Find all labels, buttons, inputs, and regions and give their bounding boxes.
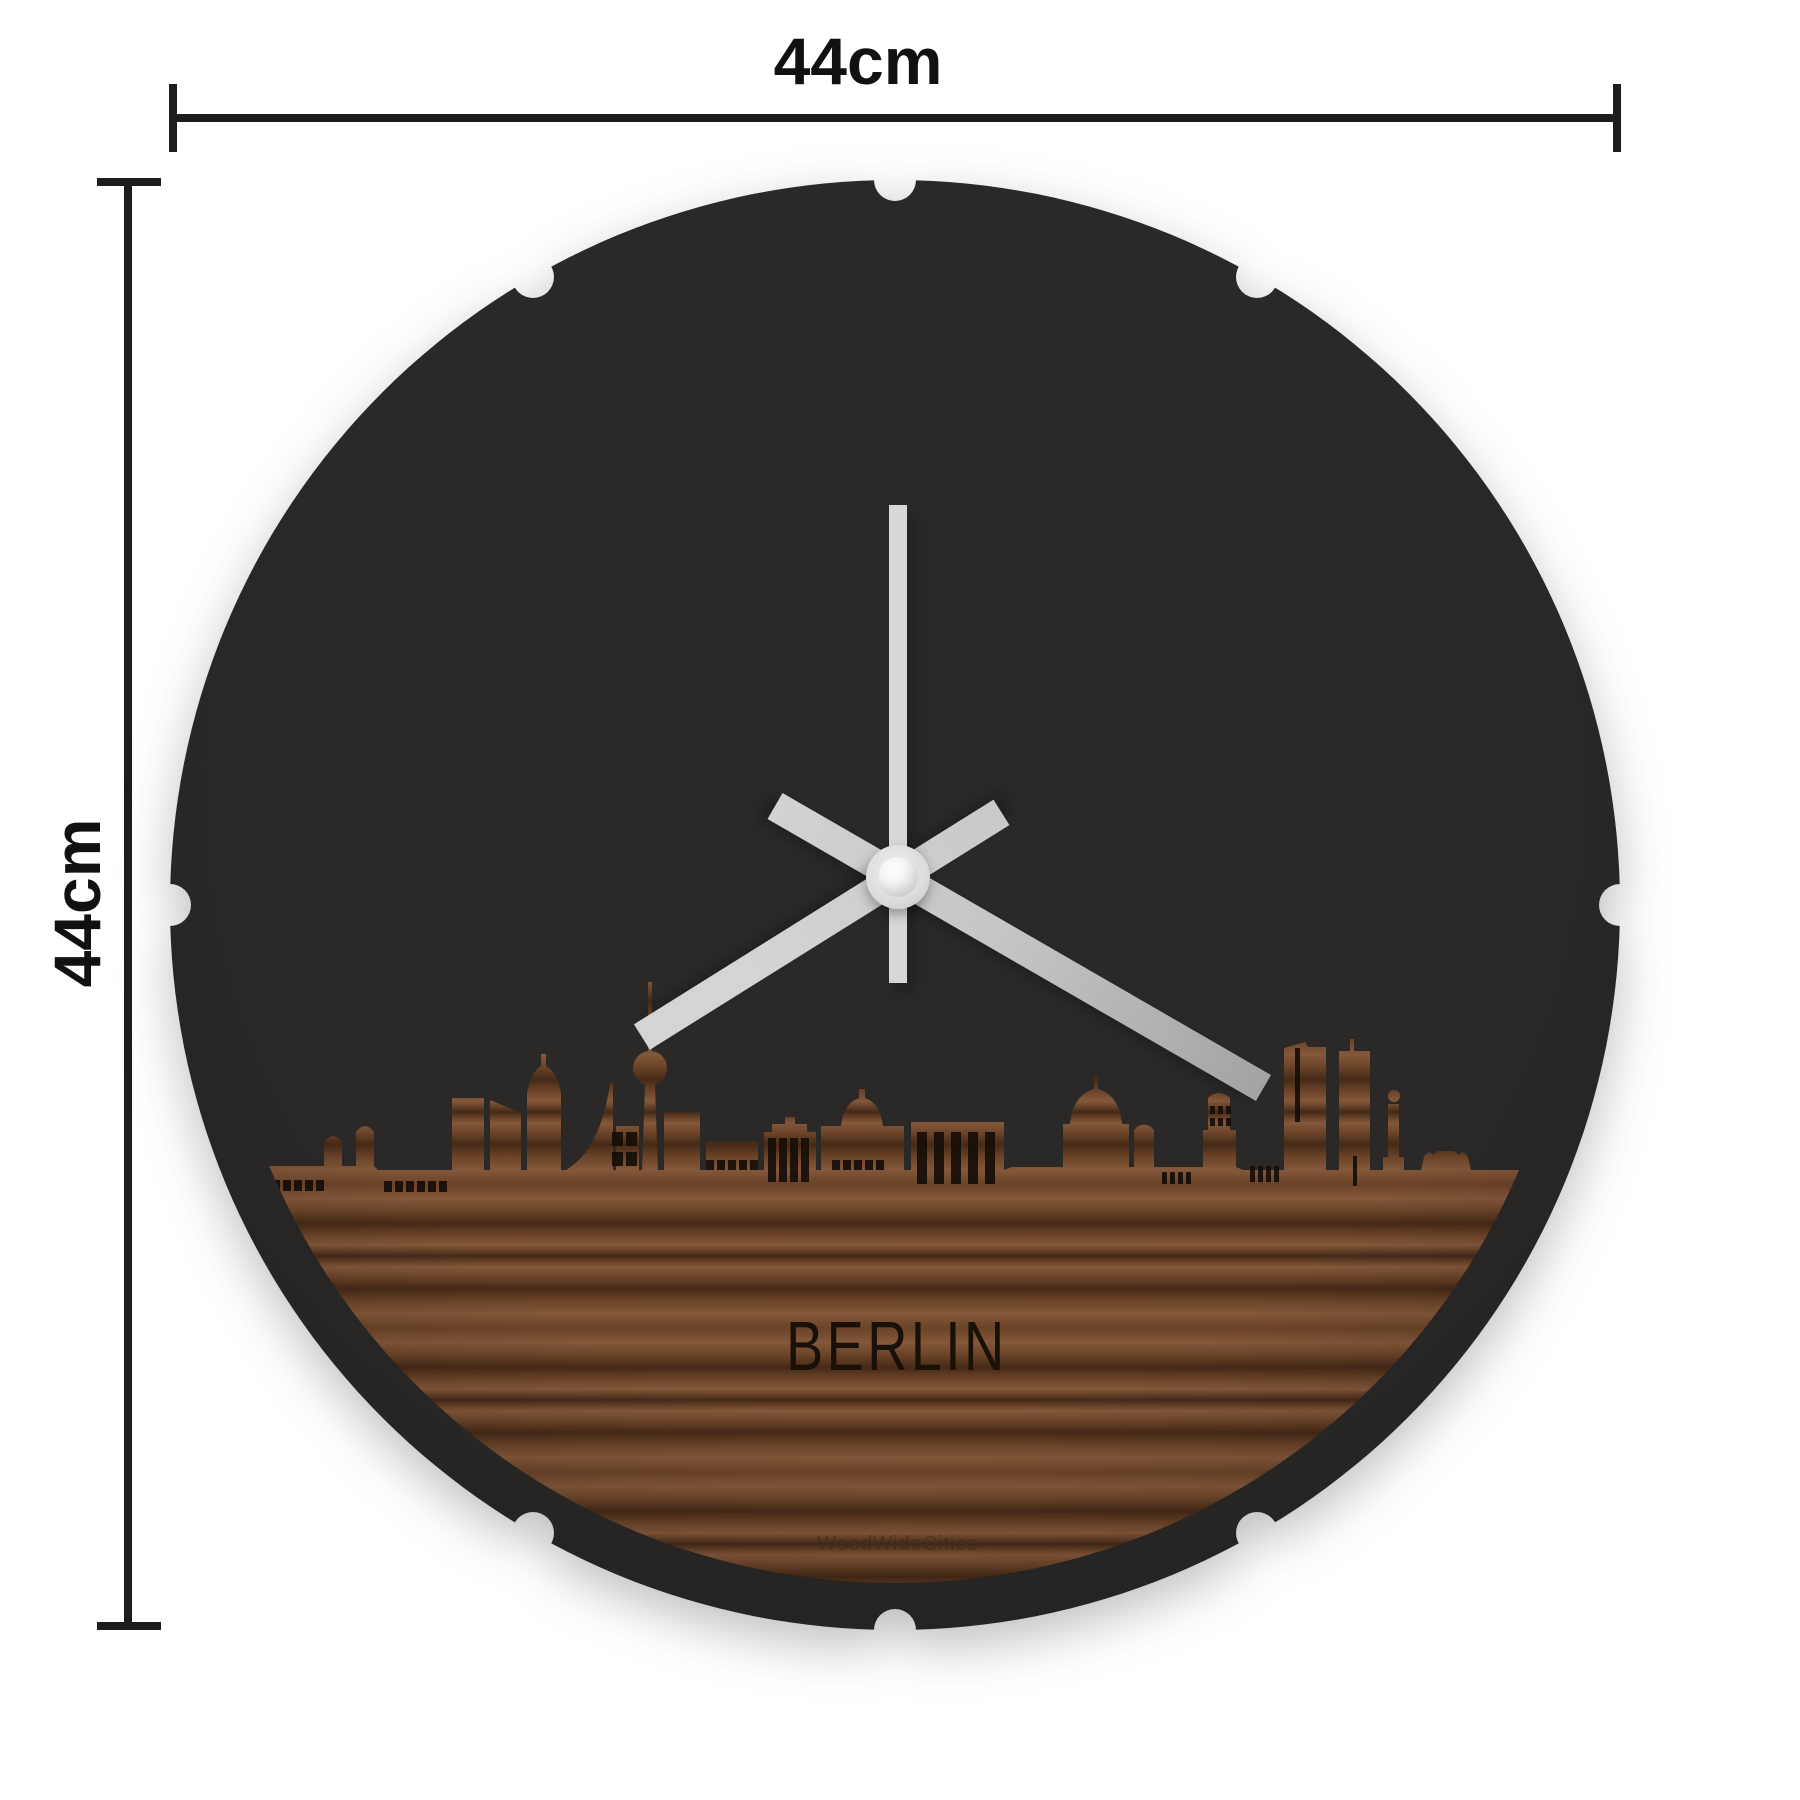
brand-watermark: WoodWideCities bbox=[798, 1533, 998, 1556]
city-name-engraving: BERLIN bbox=[786, 1306, 1008, 1386]
second-hand bbox=[889, 505, 907, 983]
clock-hub bbox=[866, 845, 930, 909]
clock-disc-group bbox=[150, 180, 1700, 1750]
hub-cap bbox=[878, 857, 918, 897]
product-image: 44cm 44cm bbox=[0, 0, 1800, 1800]
